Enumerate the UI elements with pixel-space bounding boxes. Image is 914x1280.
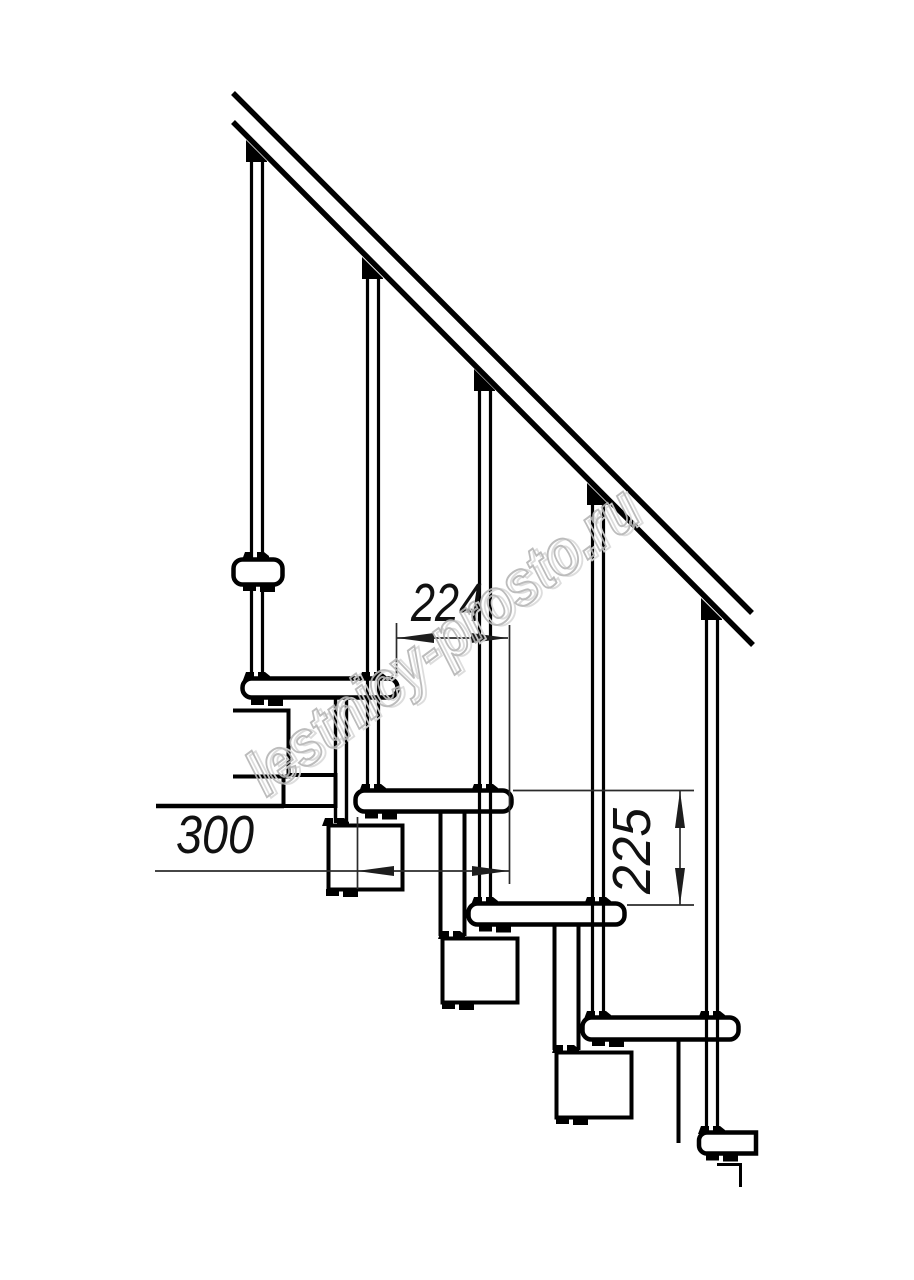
tread-4 [583,1018,739,1040]
staircase-technical-drawing: 224 300 225 lestnicy-prosto.ru lestnicy-… [0,0,914,1280]
baluster-1 [252,160,263,676]
tread-5-partial [699,1133,756,1154]
handrail-connector-wedges [246,140,722,620]
baluster-5 [707,618,718,1130]
break-lines [717,1163,741,1187]
upper-support-piece [234,552,283,592]
watermark-text: lestnicy-prosto.ru [232,472,653,809]
staircase-drawing-page: 224 300 225 lestnicy-prosto.ru lestnicy-… [0,0,914,1280]
tread-2 [356,791,512,812]
dimension-label-225: 225 [602,807,662,895]
dimension-label-300: 300 [176,805,254,865]
tread-3 [469,904,625,925]
baluster-4 [593,503,604,1015]
